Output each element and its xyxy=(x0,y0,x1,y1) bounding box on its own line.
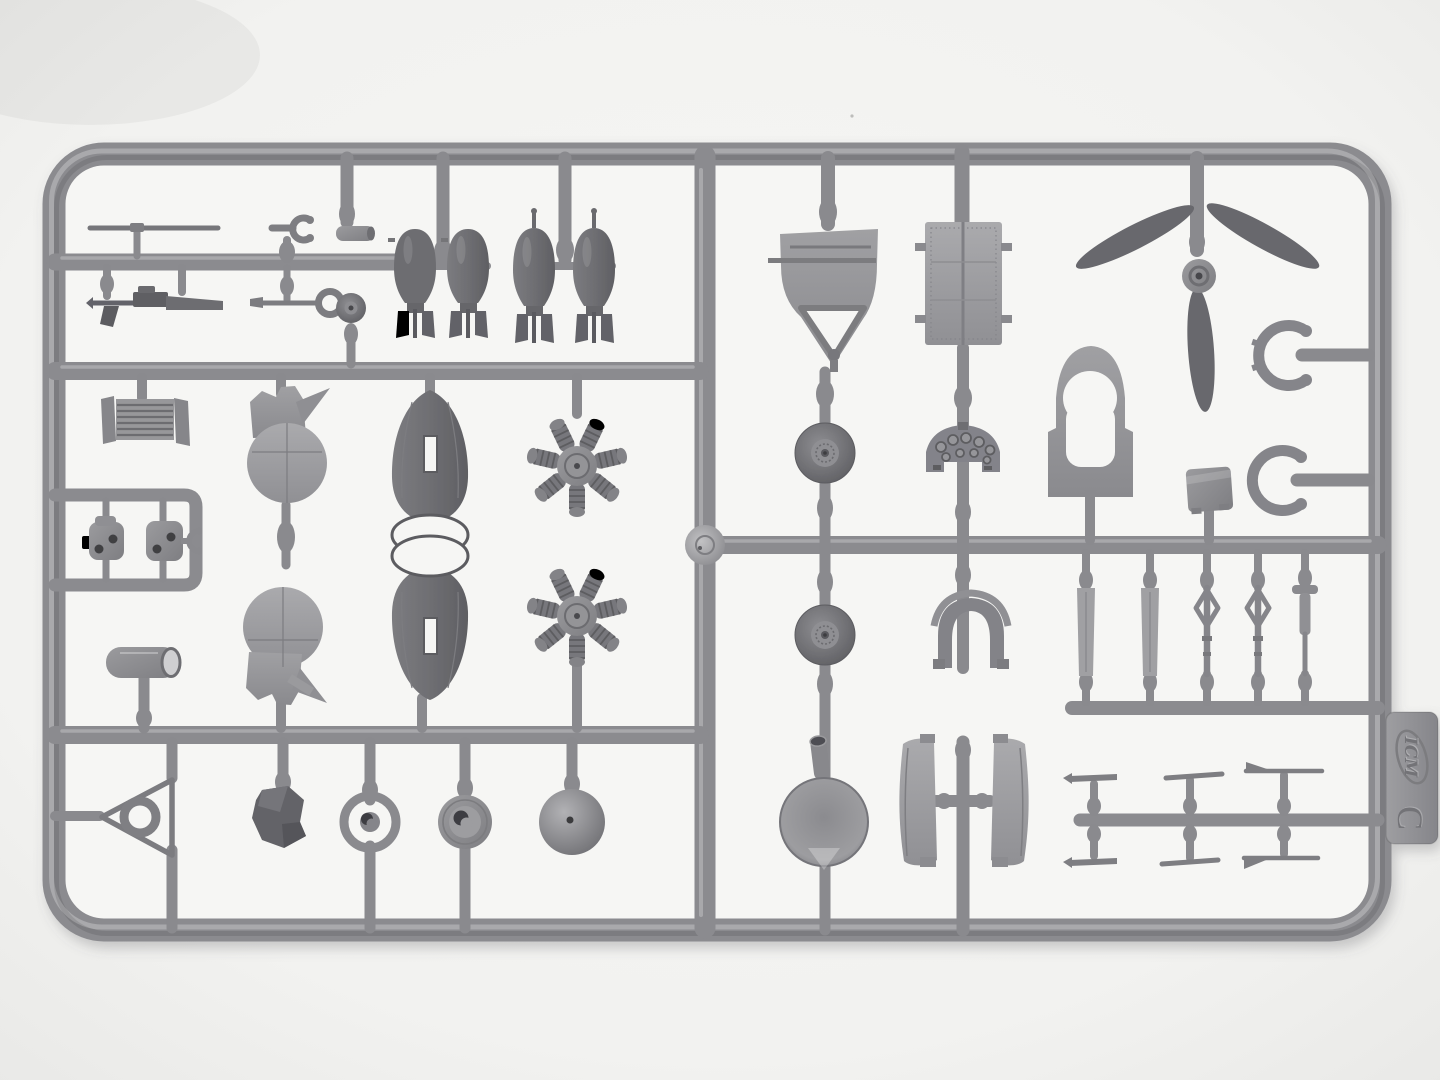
part-cowl-flap-left xyxy=(899,734,937,867)
dust-speck xyxy=(850,114,853,117)
photo-of-model-kit-sprue: ICM ICM C C xyxy=(0,0,1440,1080)
part-small-cylinder xyxy=(336,226,375,241)
part-tail-cone-cylinder xyxy=(106,647,180,678)
part-strut-blade-2 xyxy=(1141,588,1159,676)
injection-boss xyxy=(685,525,725,565)
sprue-letter: C C xyxy=(1390,805,1431,830)
sprue-tab: ICM ICM C C xyxy=(1386,712,1438,844)
part-fuselage-section-upper xyxy=(247,386,330,503)
part-strut-blade-1 xyxy=(1077,588,1095,676)
part-main-wheel-upper xyxy=(795,423,855,483)
part-hub-ring-b xyxy=(438,795,492,849)
part-fuselage-section-lower xyxy=(243,587,327,705)
part-main-wheel-lower xyxy=(795,605,855,665)
sprue: ICM ICM C C xyxy=(52,151,1439,934)
sprue-letter-text: C xyxy=(1390,806,1430,830)
part-headrest-box xyxy=(1186,466,1234,514)
sprue-illustration: ICM ICM C C xyxy=(0,0,1440,1080)
part-tail-wheel xyxy=(336,293,366,323)
icm-logo-text: ICM xyxy=(1400,736,1420,778)
part-riveted-panel xyxy=(915,222,1012,345)
part-spinner-dome xyxy=(539,789,605,855)
part-cowl-flap-right xyxy=(991,734,1029,867)
